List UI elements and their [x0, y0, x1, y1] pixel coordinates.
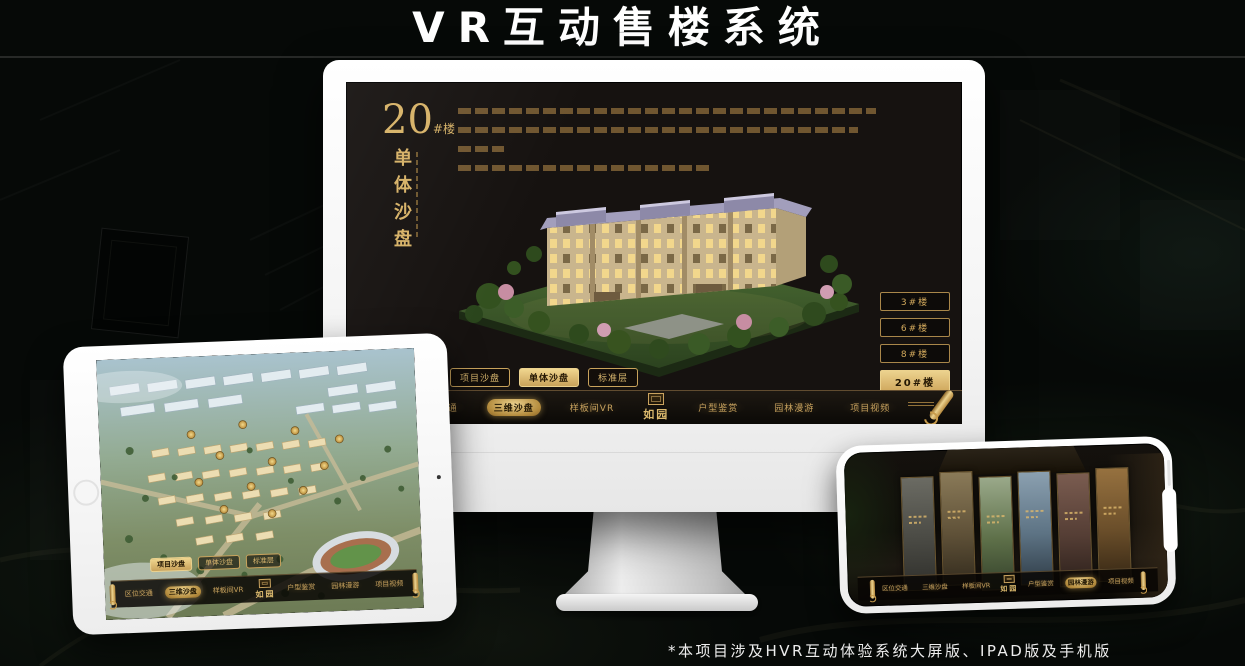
monitor-subtabs: 项目沙盘 单体沙盘 标准层 — [450, 368, 638, 387]
monitor-stand-base — [556, 594, 758, 611]
background-horizon-line — [0, 56, 1245, 58]
tablet-brand-seal-icon — [259, 578, 271, 587]
brand-logo-text: 如园 — [643, 406, 669, 422]
scroll-flourish-icon — [908, 402, 934, 408]
floor-button-3[interactable]: 3#楼 — [880, 292, 950, 311]
tablet-subtab-single-sandbox[interactable]: 单体沙盘 — [198, 555, 241, 571]
phone-nav-item-3d-sandbox[interactable]: 三维沙盘 — [919, 581, 951, 593]
gallery-card-interior[interactable] — [1095, 467, 1132, 582]
floor-button-6[interactable]: 6#楼 — [880, 318, 950, 337]
tablet-subtab-project-sandbox-selected[interactable]: 项目沙盘 — [150, 557, 193, 573]
phone-nav-item-showroom-vr[interactable]: 样板间VR — [959, 579, 993, 591]
tablet-nav-item-3d-sandbox[interactable]: 三维沙盘 — [165, 585, 201, 598]
tablet-nav-item-showroom-vr[interactable]: 样板间VR — [209, 584, 248, 597]
brand-seal-icon — [648, 393, 664, 405]
brand-logo: 如园 — [643, 393, 669, 422]
tablet-nav-item-project-video[interactable]: 项目视频 — [371, 577, 407, 590]
phone-brand-seal-icon — [1003, 575, 1014, 583]
floor-button-8[interactable]: 8#楼 — [880, 344, 950, 363]
gallery-card-balcony[interactable] — [939, 471, 976, 586]
tablet-nav-item-unit-plans[interactable]: 户型鉴赏 — [283, 581, 319, 594]
tablet-brand-logo: 如园 — [255, 578, 276, 600]
tablet-screen: 项目沙盘 单体沙盘 标准层 区位交通 三维沙盘 样板间VR 如园 户型鉴赏 园林… — [96, 348, 424, 620]
gallery-card-tower[interactable] — [1017, 471, 1054, 586]
floor-number: 20 — [382, 97, 433, 143]
page-title: VR互动售楼系统 — [0, 0, 1245, 56]
phone-screen: 区位交通 三维沙盘 样板间VR 如园 户型鉴赏 园林漫游 项目视频 — [844, 443, 1169, 607]
subtab-project-sandbox[interactable]: 项目沙盘 — [450, 368, 510, 387]
subtab-single-sandbox-selected[interactable]: 单体沙盘 — [519, 368, 579, 387]
phone-brand-logo-text: 如园 — [1000, 584, 1018, 595]
phone-nav-item-location[interactable]: 区位交通 — [879, 582, 911, 594]
floor-name-vertical: 单体沙盘 — [388, 148, 414, 256]
floor-heading-divider — [416, 152, 418, 238]
floor-button-group: 3#楼 6#楼 8#楼 20#楼 — [880, 292, 950, 393]
tablet-brand-logo-text: 如园 — [255, 588, 275, 600]
tablet-nav-item-garden-tour[interactable]: 园林漫游 — [327, 579, 363, 592]
tablet-scroll-left-icon[interactable] — [109, 584, 115, 605]
tablet-camera-icon — [437, 475, 441, 479]
phone-side-button — [1167, 460, 1171, 486]
tablet-subtab-standard-floor[interactable]: 标准层 — [246, 553, 282, 568]
phone-device: 区位交通 三维沙盘 样板间VR 如园 户型鉴赏 园林漫游 项目视频 — [835, 436, 1176, 614]
phone-scroll-right-icon[interactable] — [1141, 571, 1147, 590]
phone-notch — [1162, 488, 1178, 552]
nav-item-3d-sandbox[interactable]: 三维沙盘 — [487, 399, 541, 416]
building-model[interactable] — [444, 146, 874, 382]
subtab-standard-floor[interactable]: 标准层 — [588, 368, 638, 387]
tablet-home-button[interactable] — [73, 479, 100, 506]
phone-nav-item-garden-tour[interactable]: 园林漫游 — [1065, 576, 1097, 588]
nav-item-garden-tour[interactable]: 园林漫游 — [767, 399, 821, 416]
tablet-device: 项目沙盘 单体沙盘 标准层 区位交通 三维沙盘 样板间VR 如园 户型鉴赏 园林… — [63, 333, 458, 636]
phone-nav-item-project-video[interactable]: 项目视频 — [1105, 575, 1137, 587]
tablet-nav-item-location[interactable]: 区位交通 — [121, 587, 157, 600]
nav-item-project-video[interactable]: 项目视频 — [843, 399, 897, 416]
footnote-text: *本项目涉及HVR互动体验系统大屏版、IPAD版及手机版 — [668, 640, 1112, 661]
phone-brand-logo: 如园 — [1000, 575, 1019, 595]
nav-item-unit-plans[interactable]: 户型鉴赏 — [691, 399, 745, 416]
floor-heading: 20#楼 — [382, 100, 455, 140]
scroll-menu-icon[interactable] — [937, 388, 946, 422]
phone-scroll-left-icon[interactable] — [869, 579, 875, 598]
nav-item-showroom-vr[interactable]: 样板间VR — [563, 399, 621, 416]
poster: VR互动售楼系统 20#楼 单体沙盘 — [0, 0, 1245, 666]
phone-nav-item-unit-plans[interactable]: 户型鉴赏 — [1025, 577, 1057, 589]
floor-number-suffix: #楼 — [433, 122, 455, 136]
background-picture-frame — [91, 228, 189, 339]
